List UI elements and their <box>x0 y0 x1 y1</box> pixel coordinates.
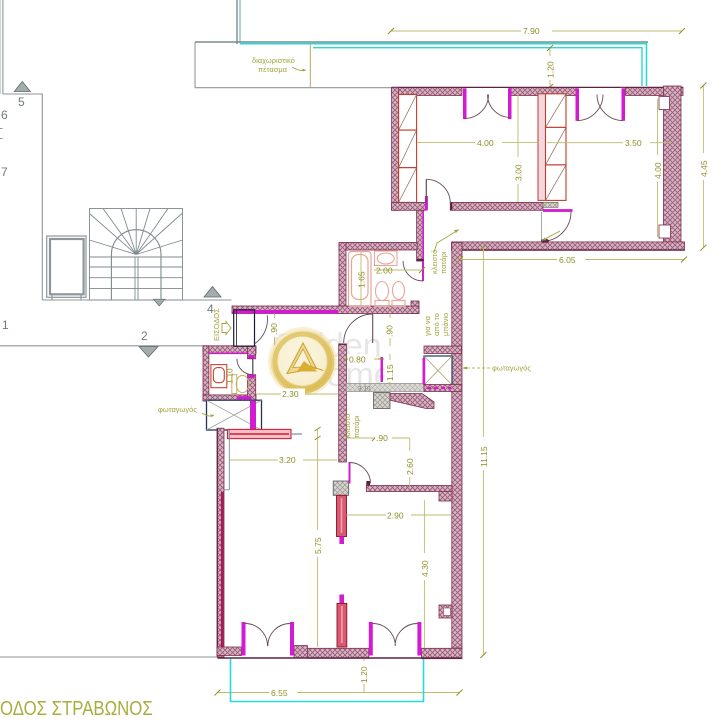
svg-text:1.20: 1.20 <box>359 666 369 683</box>
svg-text:κλειστό: κλειστό <box>430 250 439 274</box>
svg-text:3.50: 3.50 <box>625 138 642 148</box>
svg-text:φωταγωγός: φωταγωγός <box>158 405 197 414</box>
svg-text:2.60: 2.60 <box>405 458 415 475</box>
svg-text:6.05: 6.05 <box>559 255 576 265</box>
svg-text:ΕΙΣΟΔΟΣ: ΕΙΣΟΔΟΣ <box>212 308 221 341</box>
svg-text:πατάρι: πατάρι <box>439 251 448 274</box>
svg-text:από το: από το <box>432 313 441 336</box>
svg-text:1.20: 1.20 <box>546 61 556 78</box>
svg-text:2.30: 2.30 <box>282 389 299 399</box>
svg-text:2.00: 2.00 <box>376 266 393 276</box>
svg-text:μπάνιο: μπάνιο <box>441 313 450 336</box>
svg-text:πατάρι: πατάρι <box>352 415 361 438</box>
svg-text:1: 1 <box>2 318 9 332</box>
svg-text:1.65: 1.65 <box>357 271 367 288</box>
svg-text:4.30: 4.30 <box>420 560 430 577</box>
svg-text:4.45: 4.45 <box>699 160 709 177</box>
svg-text:2: 2 <box>141 329 148 343</box>
svg-text:3.00: 3.00 <box>514 164 524 181</box>
svg-text:κλειστό: κλειστό <box>343 414 352 438</box>
svg-text:6: 6 <box>1 108 8 122</box>
svg-text:φωταγωγός: φωταγωγός <box>492 364 531 373</box>
svg-text:ΟΔΟΣ ΣΤΡΑΒΩΝΟΣ: ΟΔΟΣ ΣΤΡΑΒΩΝΟΣ <box>0 697 153 720</box>
svg-text:3.20: 3.20 <box>279 455 296 465</box>
svg-text:για να: για να <box>423 315 432 336</box>
svg-text:.90: .90 <box>385 325 395 337</box>
svg-text:πέτασμα: πέτασμα <box>258 65 288 74</box>
svg-text:5.75: 5.75 <box>313 537 323 554</box>
svg-text:4.00: 4.00 <box>653 162 663 179</box>
svg-text:4.00: 4.00 <box>477 138 494 148</box>
svg-text:διαχωριστικό: διαχωριστικό <box>252 56 295 65</box>
svg-text:0.80: 0.80 <box>349 355 366 365</box>
svg-text:3.10: 3.10 <box>358 386 371 393</box>
svg-text:.90: .90 <box>376 433 388 443</box>
svg-text:5: 5 <box>18 95 25 109</box>
svg-text:7: 7 <box>1 165 8 179</box>
svg-text:1.15: 1.15 <box>385 364 395 381</box>
svg-text:6.55: 6.55 <box>271 688 288 698</box>
svg-text:11.15: 11.15 <box>479 446 489 467</box>
svg-text:.90: .90 <box>269 323 279 335</box>
svg-text:2.90: 2.90 <box>387 511 404 521</box>
svg-text:1.10: 1.10 <box>226 368 235 384</box>
svg-text:7.90: 7.90 <box>523 26 540 36</box>
